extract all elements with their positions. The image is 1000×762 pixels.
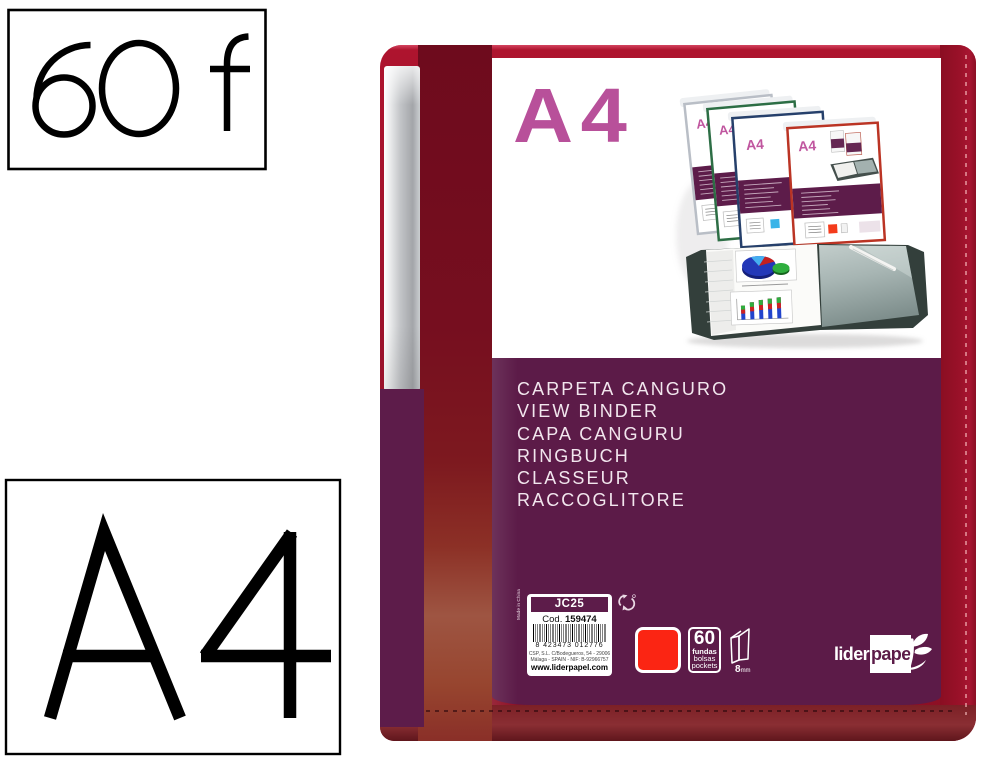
svg-text:A4: A4 [798,137,817,154]
svg-text:A4: A4 [745,136,764,153]
svg-text:8mm: 8mm [735,664,751,675]
